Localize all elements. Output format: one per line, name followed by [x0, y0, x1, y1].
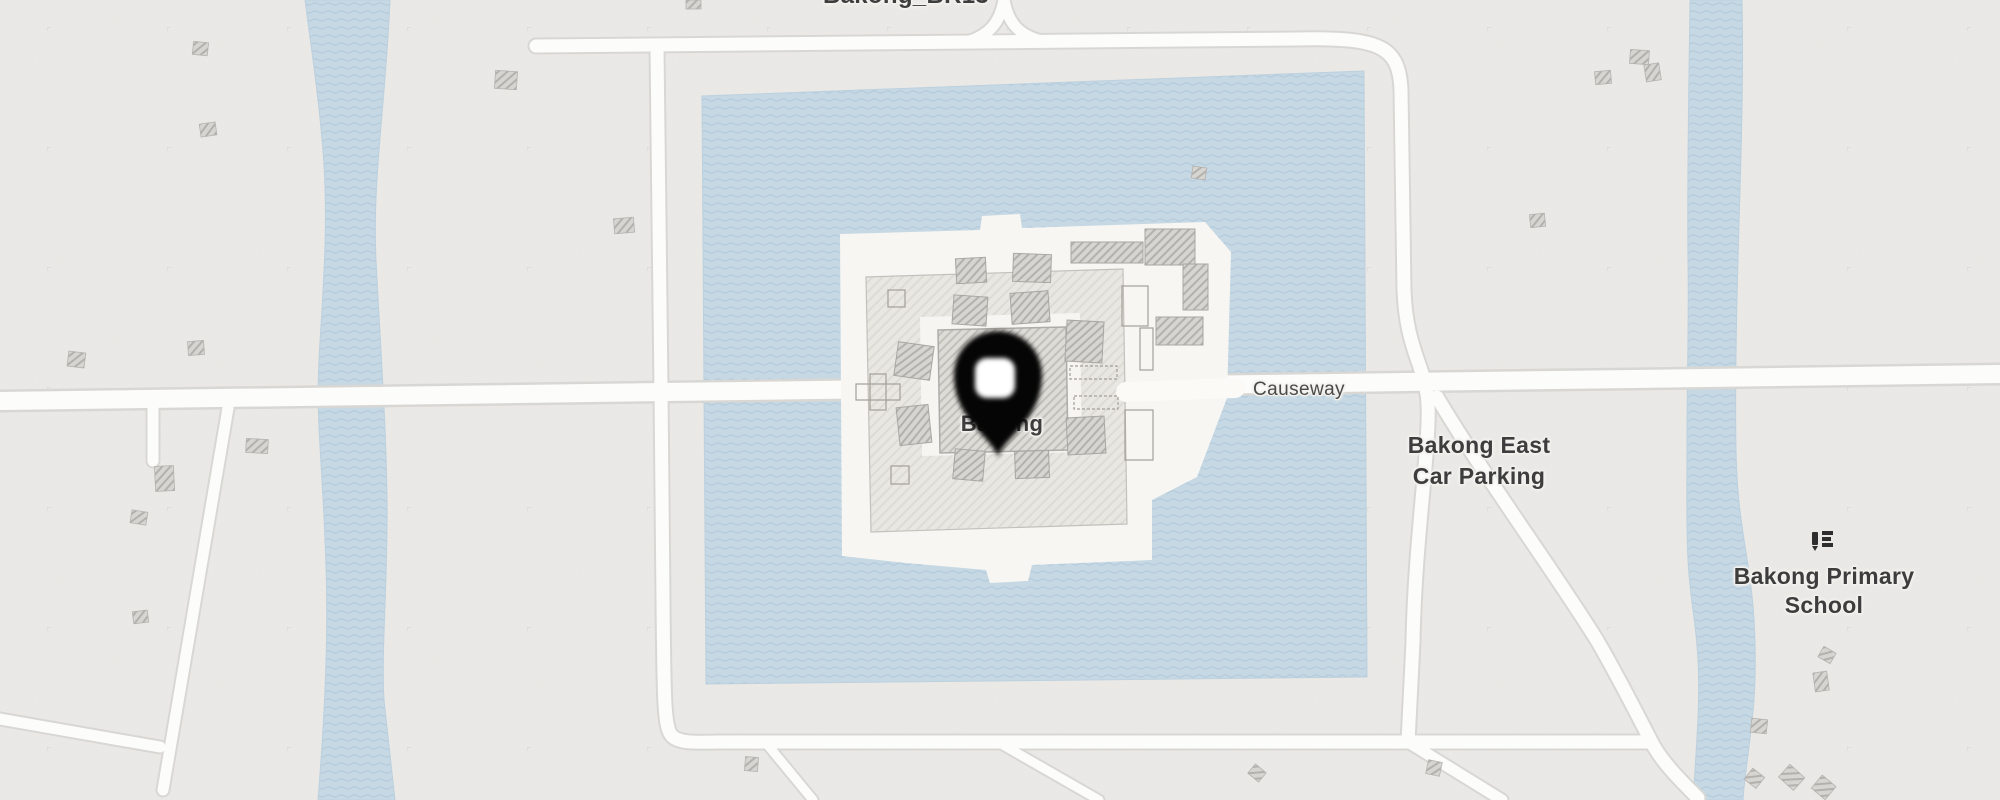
pin-icon: [950, 325, 1046, 457]
school-label-line2: School: [1734, 591, 1915, 620]
dropped-pin-marker[interactable]: [950, 325, 1046, 457]
school-label[interactable]: Bakong Primary School: [1734, 562, 1915, 620]
parking-label-line2: Car Parking: [1408, 461, 1551, 492]
school-label-line1: Bakong Primary: [1734, 562, 1915, 591]
road-label-causeway: Causeway: [1253, 379, 1345, 401]
school-icon[interactable]: [1810, 530, 1836, 554]
waypoint-label[interactable]: Bakong_BR13: [823, 0, 989, 10]
parking-label-line1: Bakong East: [1408, 430, 1551, 461]
map-canvas[interactable]: Bakong_BR13 Bakong Causeway Bakong East …: [0, 0, 2000, 800]
parking-label[interactable]: Bakong East Car Parking: [1408, 430, 1551, 492]
